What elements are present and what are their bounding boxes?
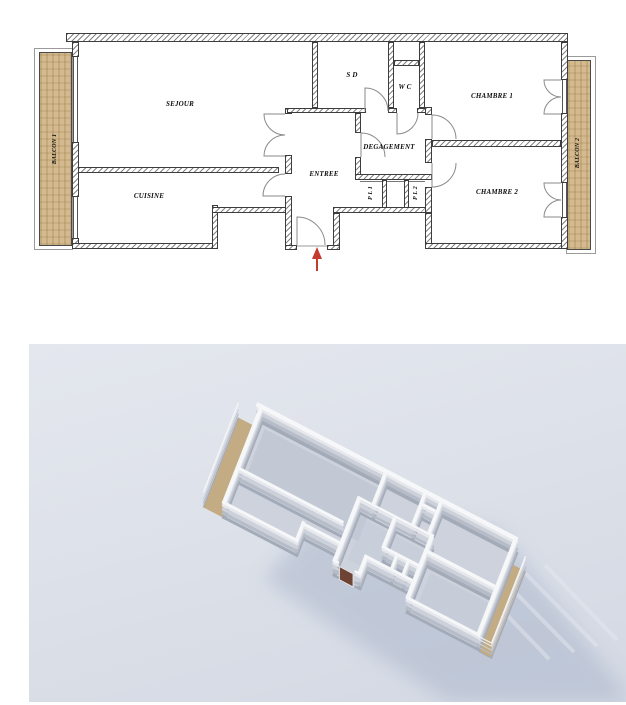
room-label-degagement: DEGAGEMENT	[363, 143, 414, 151]
floor-plan-drawing: SEJOUR CUISINE S D W C CHAMBRE 1 DEGAGEM…	[0, 0, 626, 335]
room-label-balcon1: BALCON 1	[52, 134, 58, 164]
page: SEJOUR CUISINE S D W C CHAMBRE 1 DEGAGEM…	[0, 0, 626, 705]
room-label-cuisine: CUISINE	[134, 192, 164, 200]
room-label-pl2: P L 2	[413, 186, 419, 200]
room-label-balcon2: BALCON 2	[575, 138, 581, 168]
room-label-chambre2: CHAMBRE 2	[476, 188, 518, 196]
room-label-wc: W C	[398, 83, 411, 91]
entrance-arrow	[312, 247, 322, 271]
room-label-entree: ENTREE	[309, 170, 338, 178]
room-label-chambre1: CHAMBRE 1	[471, 92, 513, 100]
render-3d-model	[29, 344, 626, 702]
room-label-sejour: SEJOUR	[166, 100, 194, 108]
door-swing-arcs	[0, 0, 626, 335]
room-label-pl1: P L 1	[368, 186, 374, 200]
room-label-sd: S D	[346, 71, 357, 79]
render-3d-view	[29, 344, 626, 702]
